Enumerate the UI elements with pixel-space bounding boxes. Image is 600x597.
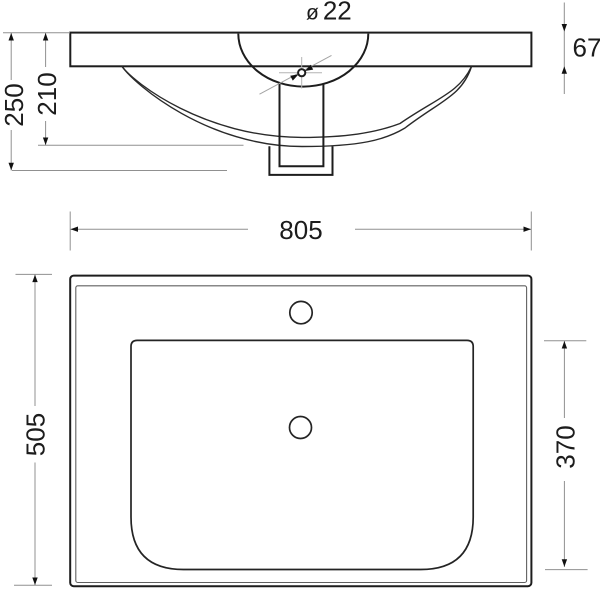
svg-text:ø22: ø22 — [306, 0, 352, 26]
svg-text:505: 505 — [21, 413, 51, 456]
svg-text:370: 370 — [550, 425, 580, 468]
svg-text:250: 250 — [0, 83, 29, 126]
svg-text:805: 805 — [279, 215, 322, 245]
svg-text:210: 210 — [32, 72, 62, 115]
svg-text:67: 67 — [573, 32, 600, 62]
